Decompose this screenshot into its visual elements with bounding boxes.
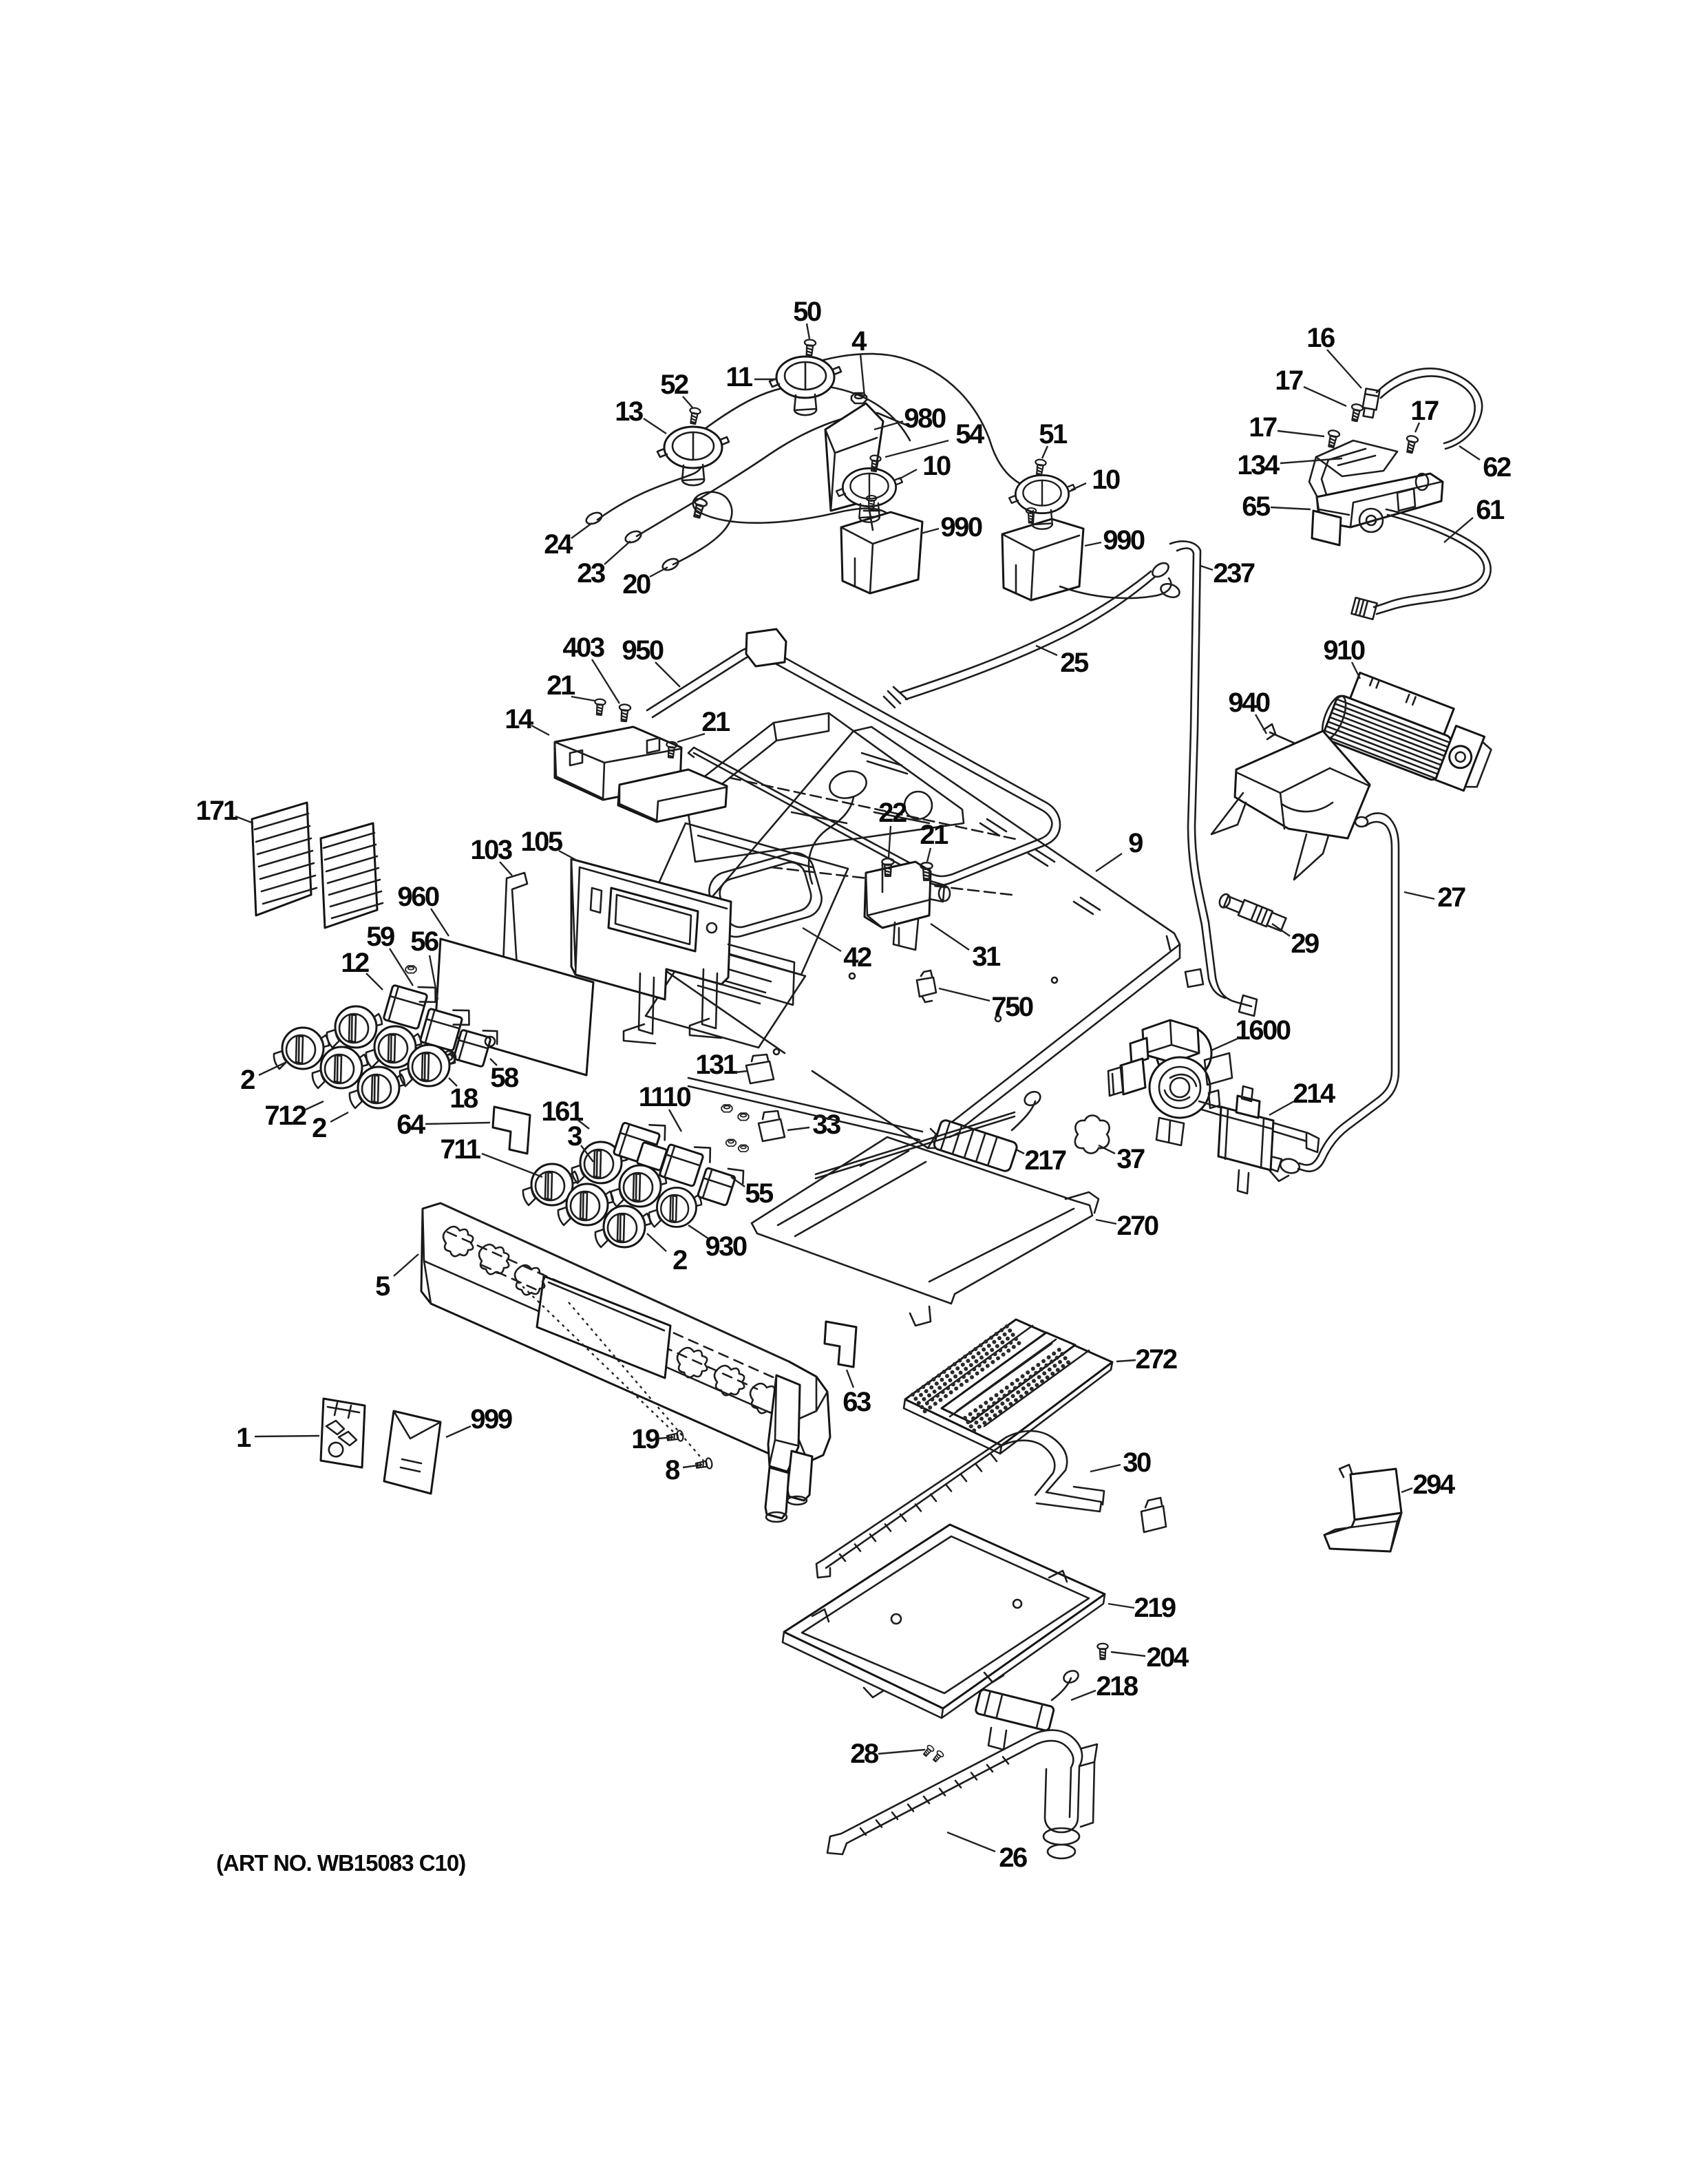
svg-text:11: 11 [725,362,753,392]
svg-text:103: 103 [470,835,511,865]
svg-text:105: 105 [520,827,562,857]
svg-text:1600: 1600 [1236,1015,1291,1046]
svg-text:18: 18 [449,1083,478,1114]
svg-text:1110: 1110 [639,1082,691,1112]
svg-text:26: 26 [999,1843,1027,1873]
svg-text:37: 37 [1116,1144,1145,1174]
svg-text:59: 59 [366,922,394,952]
svg-text:403: 403 [562,633,604,663]
svg-text:17: 17 [1275,365,1303,396]
svg-text:54: 54 [955,419,985,449]
svg-text:64: 64 [396,1110,426,1140]
svg-text:65: 65 [1242,491,1271,522]
svg-text:19: 19 [631,1424,659,1454]
svg-text:55: 55 [745,1178,774,1209]
svg-text:62: 62 [1483,452,1511,483]
svg-text:25: 25 [1060,648,1089,678]
svg-text:750: 750 [991,992,1032,1022]
svg-text:21: 21 [701,707,730,737]
svg-text:16: 16 [1306,323,1335,353]
svg-text:50: 50 [793,297,821,327]
svg-text:2: 2 [240,1065,255,1095]
svg-text:33: 33 [812,1110,840,1140]
svg-text:204: 204 [1146,1642,1189,1673]
svg-text:219: 219 [1134,1593,1175,1623]
svg-text:58: 58 [490,1063,519,1093]
svg-text:31: 31 [972,942,1001,972]
svg-text:21: 21 [547,670,575,701]
svg-text:2: 2 [312,1113,326,1143]
svg-text:217: 217 [1024,1145,1066,1176]
svg-text:10: 10 [1092,465,1120,495]
svg-text:12: 12 [341,948,369,978]
svg-text:61: 61 [1476,495,1505,525]
svg-text:17: 17 [1249,412,1277,443]
svg-text:237: 237 [1213,558,1254,589]
svg-text:1: 1 [236,1423,251,1453]
svg-text:910: 910 [1323,635,1364,666]
svg-text:8: 8 [665,1455,680,1485]
svg-text:711: 711 [440,1134,480,1165]
svg-text:(ART NO. WB15083 C10): (ART NO. WB15083 C10) [216,1850,465,1876]
svg-text:4: 4 [851,326,867,357]
svg-text:28: 28 [850,1739,879,1769]
svg-text:270: 270 [1116,1211,1158,1241]
svg-text:10: 10 [922,451,951,481]
svg-text:5: 5 [375,1271,390,1302]
svg-text:930: 930 [705,1231,746,1262]
svg-text:52: 52 [660,370,688,400]
svg-text:20: 20 [622,569,650,600]
svg-text:712: 712 [264,1101,306,1131]
svg-text:63: 63 [842,1387,871,1417]
svg-text:214: 214 [1293,1079,1335,1109]
svg-text:51: 51 [1039,419,1068,449]
svg-text:999: 999 [470,1404,511,1434]
svg-text:27: 27 [1437,882,1465,913]
svg-text:30: 30 [1123,1448,1151,1478]
svg-text:17: 17 [1410,396,1439,426]
svg-text:131: 131 [695,1050,737,1080]
svg-text:218: 218 [1096,1671,1138,1701]
svg-text:56: 56 [410,926,438,957]
svg-text:990: 990 [940,512,982,542]
svg-text:42: 42 [843,942,871,973]
svg-text:134: 134 [1237,450,1280,480]
svg-text:990: 990 [1103,525,1144,555]
svg-text:960: 960 [397,882,438,912]
svg-text:980: 980 [904,403,945,434]
svg-text:9: 9 [1128,828,1143,858]
svg-text:29: 29 [1291,929,1319,959]
svg-text:940: 940 [1228,688,1269,718]
svg-text:2: 2 [672,1245,687,1275]
svg-text:24: 24 [544,529,573,560]
svg-text:171: 171 [195,796,237,826]
svg-text:272: 272 [1135,1344,1176,1375]
svg-text:3: 3 [567,1121,582,1152]
svg-text:950: 950 [622,635,663,666]
svg-text:21: 21 [920,820,949,850]
svg-text:13: 13 [615,396,643,427]
svg-text:14: 14 [505,704,534,734]
svg-text:23: 23 [577,558,605,589]
svg-text:294: 294 [1412,1470,1455,1500]
svg-text:22: 22 [878,798,907,828]
